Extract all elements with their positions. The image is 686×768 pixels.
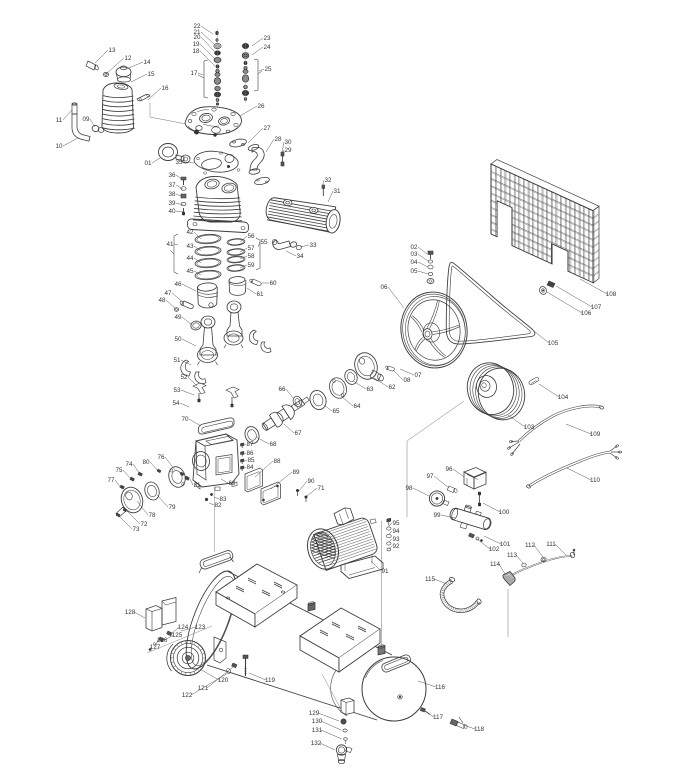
svg-text:106: 106 [581, 310, 592, 317]
svg-text:67: 67 [294, 430, 302, 437]
svg-text:32: 32 [324, 177, 332, 184]
svg-text:61: 61 [256, 291, 264, 298]
svg-text:71: 71 [317, 485, 325, 492]
svg-text:119: 119 [265, 677, 276, 684]
svg-text:118: 118 [474, 726, 485, 733]
svg-text:94: 94 [392, 528, 400, 535]
svg-text:107: 107 [591, 304, 602, 311]
svg-text:86: 86 [246, 450, 254, 457]
svg-text:46: 46 [174, 281, 182, 288]
svg-text:25: 25 [264, 66, 272, 73]
svg-text:91: 91 [381, 568, 389, 575]
svg-text:117: 117 [433, 714, 444, 721]
svg-text:84: 84 [246, 464, 254, 471]
svg-text:36: 36 [168, 172, 176, 179]
svg-text:116: 116 [435, 684, 446, 691]
svg-text:56: 56 [247, 233, 255, 240]
svg-text:18: 18 [192, 48, 200, 55]
svg-text:80: 80 [142, 459, 150, 466]
svg-text:47: 47 [164, 290, 172, 297]
svg-text:114: 114 [490, 561, 501, 568]
svg-text:87: 87 [246, 441, 254, 448]
svg-text:52: 52 [180, 374, 188, 381]
svg-text:88: 88 [273, 458, 281, 465]
svg-text:85: 85 [247, 457, 255, 464]
svg-text:115: 115 [425, 576, 436, 583]
svg-text:130: 130 [312, 718, 323, 725]
svg-text:38: 38 [168, 191, 176, 198]
svg-text:90: 90 [307, 478, 315, 485]
svg-text:70: 70 [181, 416, 189, 423]
svg-text:93: 93 [392, 536, 400, 543]
svg-text:123: 123 [195, 624, 206, 631]
svg-text:131: 131 [312, 727, 323, 734]
svg-text:34: 34 [296, 253, 304, 260]
svg-text:50: 50 [174, 336, 182, 343]
svg-text:79: 79 [168, 504, 176, 511]
svg-text:81: 81 [193, 482, 201, 489]
svg-text:04: 04 [410, 259, 418, 266]
svg-text:54: 54 [172, 400, 180, 407]
svg-text:74: 74 [125, 461, 133, 468]
svg-text:10: 10 [55, 143, 63, 150]
svg-text:77: 77 [107, 477, 115, 484]
svg-text:29: 29 [284, 147, 292, 154]
svg-text:44: 44 [186, 255, 194, 262]
svg-text:132: 132 [311, 740, 322, 747]
svg-text:96: 96 [445, 466, 453, 473]
svg-text:82: 82 [214, 502, 222, 509]
svg-text:97: 97 [426, 473, 434, 480]
svg-text:43: 43 [186, 243, 194, 250]
svg-text:62: 62 [388, 384, 396, 391]
svg-text:68: 68 [269, 441, 277, 448]
svg-text:60: 60 [269, 280, 277, 287]
svg-text:51: 51 [173, 357, 181, 364]
svg-text:76: 76 [157, 454, 165, 461]
svg-text:17: 17 [190, 70, 198, 77]
svg-text:109: 109 [590, 431, 601, 438]
svg-text:28: 28 [274, 136, 282, 143]
svg-text:31: 31 [333, 188, 341, 195]
svg-text:33: 33 [309, 242, 317, 249]
svg-text:126: 126 [157, 637, 168, 644]
svg-text:75: 75 [115, 467, 123, 474]
svg-text:122: 122 [182, 692, 193, 699]
svg-text:15: 15 [147, 71, 155, 78]
svg-text:30: 30 [284, 139, 292, 146]
svg-text:108: 108 [606, 291, 617, 298]
svg-text:55: 55 [260, 239, 268, 246]
svg-text:39: 39 [168, 200, 176, 207]
svg-text:37: 37 [168, 182, 176, 189]
svg-text:113: 113 [507, 552, 518, 559]
svg-text:27: 27 [263, 125, 271, 132]
svg-text:89: 89 [292, 469, 300, 476]
svg-text:19: 19 [192, 41, 200, 48]
svg-text:101: 101 [500, 541, 511, 548]
svg-text:05: 05 [410, 268, 418, 275]
svg-text:11: 11 [56, 117, 63, 124]
svg-text:48: 48 [158, 297, 166, 304]
svg-text:02: 02 [410, 244, 418, 251]
svg-text:129: 129 [309, 710, 320, 717]
svg-text:73: 73 [132, 526, 140, 533]
svg-text:16: 16 [161, 85, 169, 92]
svg-text:09: 09 [82, 116, 90, 123]
svg-text:124: 124 [178, 624, 189, 631]
svg-text:14: 14 [143, 59, 151, 66]
svg-text:24: 24 [263, 44, 271, 51]
svg-text:26: 26 [257, 103, 265, 110]
svg-text:13: 13 [108, 47, 116, 54]
svg-text:95: 95 [392, 520, 400, 527]
svg-text:42: 42 [186, 229, 194, 236]
svg-text:59: 59 [247, 262, 255, 269]
svg-text:69: 69 [228, 480, 236, 487]
svg-text:65: 65 [332, 408, 340, 415]
svg-text:40: 40 [168, 208, 176, 215]
svg-text:07: 07 [414, 372, 422, 379]
svg-text:45: 45 [186, 268, 194, 275]
svg-text:03: 03 [410, 251, 418, 258]
svg-text:66: 66 [278, 386, 286, 393]
svg-text:12: 12 [124, 55, 132, 62]
svg-text:92: 92 [392, 543, 400, 550]
svg-text:57: 57 [247, 245, 255, 252]
svg-text:104: 104 [558, 394, 569, 401]
svg-text:08: 08 [403, 377, 411, 384]
svg-text:105: 105 [548, 340, 559, 347]
svg-text:100: 100 [499, 509, 510, 516]
svg-text:102: 102 [489, 546, 500, 553]
svg-text:49: 49 [174, 314, 182, 321]
svg-text:127: 127 [150, 644, 161, 651]
svg-text:58: 58 [247, 253, 255, 260]
svg-text:125: 125 [172, 632, 183, 639]
svg-text:20: 20 [193, 34, 201, 41]
svg-text:99: 99 [433, 512, 441, 519]
svg-text:121: 121 [198, 685, 209, 692]
svg-text:53: 53 [173, 387, 181, 394]
svg-text:01: 01 [144, 160, 152, 167]
svg-text:110: 110 [590, 477, 601, 484]
svg-text:78: 78 [148, 512, 156, 519]
svg-text:128: 128 [125, 609, 136, 616]
svg-text:63: 63 [366, 386, 374, 393]
svg-text:112: 112 [525, 542, 536, 549]
svg-text:103: 103 [524, 424, 535, 431]
svg-text:111: 111 [546, 541, 556, 548]
svg-text:23: 23 [263, 35, 271, 42]
svg-text:35: 35 [175, 159, 183, 166]
svg-text:06: 06 [380, 284, 388, 291]
svg-text:98: 98 [405, 485, 413, 492]
svg-text:64: 64 [353, 403, 361, 410]
svg-text:41: 41 [166, 241, 174, 248]
svg-text:72: 72 [140, 521, 148, 528]
